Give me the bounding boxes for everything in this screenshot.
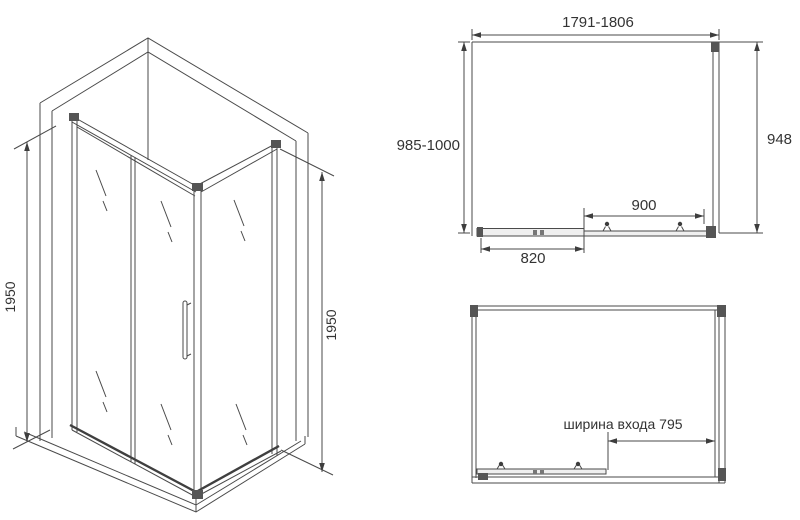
dimension-panel-span: 820 [481,238,584,267]
plan-bottom-track [477,208,716,253]
dim-overall-width-label: 1791-1806 [562,14,634,31]
front-sliding-door-track [477,462,726,481]
dim-height-left-label: 1950 [2,281,18,312]
front-outline [470,305,726,483]
plan-outline [472,42,719,236]
back-walls [40,38,308,441]
dimension-overall-width: 1791-1806 [472,14,719,40]
dim-side-width-label: 948 [767,131,792,148]
dimension-height-left: 1950 [2,126,56,449]
glass-enclosure [69,113,281,499]
glass-reflection-marks [96,170,247,445]
roller-icon [573,462,584,469]
dimension-entrance-width: ширина входа 795 [563,416,715,470]
technical-drawing-page: 1950 1950 [0,0,800,520]
dim-entrance-width-label: ширина входа 795 [563,416,682,432]
dim-door-span-label: 900 [631,197,656,214]
plan-view: 1791-1806 985-1000 948 900 [397,14,792,267]
front-view: ширина входа 795 [470,305,726,483]
dim-panel-span-label: 820 [520,250,545,267]
roller-icon [602,222,613,231]
shower-tray [16,427,305,512]
shower-enclosure-drawing: 1950 1950 [0,0,800,520]
dimension-side-width: 948 [719,42,792,233]
dimension-height-right: 1950 [280,149,339,475]
dim-overall-depth-label: 985-1000 [397,137,460,154]
dim-height-right-label: 1950 [323,309,339,340]
roller-icon [496,462,507,469]
isometric-view: 1950 1950 [2,38,339,512]
dimension-overall-depth: 985-1000 [397,42,470,233]
door-handle [183,301,191,359]
roller-icon [675,222,686,231]
dimension-door-span: 900 [584,197,704,224]
